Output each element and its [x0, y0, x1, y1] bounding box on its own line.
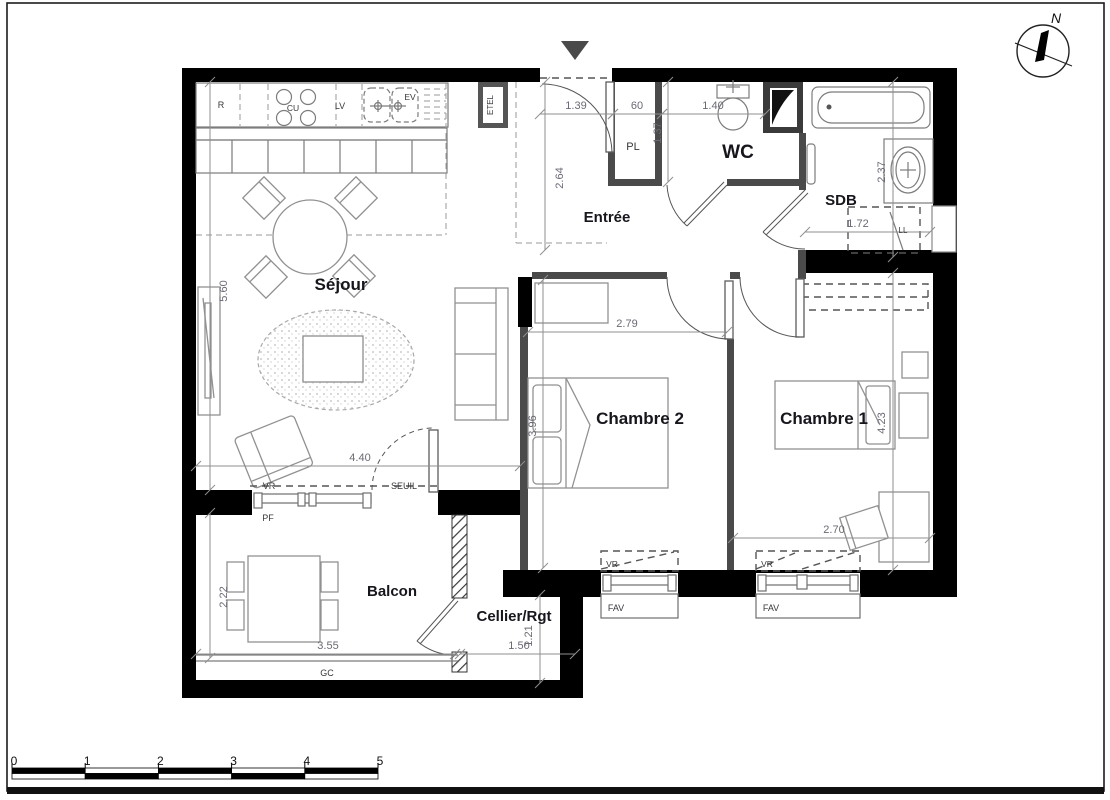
washing-machine-dashed	[848, 207, 920, 253]
dimension-2.64: 2.64	[540, 77, 566, 255]
annotation-cooktop: CU	[287, 103, 299, 113]
dimension-label-10: 3.96	[527, 415, 539, 436]
tv-unit	[198, 287, 220, 415]
annotation-fav-ch1: FAV	[763, 603, 779, 613]
annotation-sink: EV	[404, 92, 416, 102]
shelf-dashes	[424, 89, 446, 119]
room-label-sejour: Séjour	[315, 275, 368, 294]
room-label-wc: WC	[722, 142, 754, 163]
annotation-vr-ch2: VR	[606, 559, 618, 569]
coffee-table	[303, 336, 363, 382]
annotation-seuil: SEUIL	[391, 481, 417, 491]
dimension-2.79: 2.79	[523, 318, 732, 337]
scale-segment-bottom	[305, 774, 378, 780]
dimension-1.72: 1.72	[800, 218, 935, 237]
dimension-label-9: 2.79	[616, 318, 637, 330]
double-bed	[528, 378, 668, 488]
scale-segment-bottom	[12, 774, 85, 780]
floor-plan-page: N 1.39601.401.372.642.371.725.604.402.79…	[0, 0, 1110, 800]
wc-door	[667, 182, 727, 226]
compass-north-label: N	[1051, 10, 1062, 26]
dimension-label-6: 1.72	[847, 218, 868, 230]
north-compass: N	[1015, 10, 1072, 77]
dimension-label-11: 4.23	[876, 412, 888, 433]
annotation-dishwasher: LV	[335, 101, 345, 111]
dimension-label-1: 60	[631, 100, 643, 112]
cellier-door	[417, 598, 458, 655]
dimension-label-16: 1.21	[523, 625, 535, 646]
dimension-label-2: 1.40	[702, 100, 723, 112]
nightstand	[902, 352, 928, 378]
scale-label-1: 1	[84, 754, 91, 768]
room-label-cellier: Cellier/Rgt	[476, 608, 551, 625]
radiator	[807, 144, 815, 184]
annotation-vr-ch1: VR	[761, 559, 773, 569]
dimension-label-4: 2.64	[554, 167, 566, 188]
room-label-chambre2: Chambre 2	[596, 409, 684, 428]
annotation-refrigerator: R	[218, 100, 225, 110]
wardrobe-dashed	[802, 284, 928, 310]
scale-segment-top	[85, 768, 158, 774]
scale-label-2: 2	[157, 754, 164, 768]
dimension-label-0: 1.39	[565, 100, 586, 112]
scale-bar: 012345	[11, 754, 384, 779]
annotation-washer: LL	[899, 226, 908, 235]
annotation-vr-sejour: VR	[263, 481, 276, 491]
scale-segment-top	[232, 768, 305, 774]
dimension-label-7: 5.60	[218, 280, 230, 301]
scale-segment-bottom	[85, 774, 158, 780]
scale-label-3: 3	[230, 754, 237, 768]
dimension-1.40: 1.40	[657, 100, 770, 119]
room-label-sdb: SDB	[825, 192, 857, 209]
entrance-door	[540, 78, 614, 152]
dimension-label-3: 1.37	[652, 122, 664, 143]
chambre2-door	[667, 277, 733, 339]
dimension-1.21: 1.21	[523, 590, 545, 688]
room-label-balcon: Balcon	[367, 583, 417, 600]
scale-segment-bottom	[232, 774, 305, 780]
nightstand-2	[899, 393, 928, 438]
room-label-chambre1: Chambre 1	[780, 409, 868, 428]
entrance-arrow	[561, 41, 589, 60]
annotation-fav-ch2: FAV	[608, 603, 624, 613]
sofa	[455, 288, 508, 420]
wardrobe-chambre2	[535, 283, 608, 323]
desk	[879, 492, 929, 562]
scale-label-0: 0	[11, 754, 18, 768]
dimension-label-8: 4.40	[349, 452, 370, 464]
balcony-railing	[196, 655, 458, 661]
sdb-door	[763, 190, 808, 249]
dimension-2.22: 2.22	[205, 508, 230, 663]
scale-segment-top	[158, 768, 231, 774]
bathtub	[812, 87, 930, 128]
annotation-gc: GC	[320, 668, 334, 678]
balcony-table	[227, 556, 338, 642]
scale-segment-top	[12, 768, 85, 774]
dimension-label-14: 3.55	[317, 640, 338, 652]
floor-plan-drawing: N 1.39601.401.372.642.371.725.604.402.79…	[0, 0, 1110, 800]
area-rug	[258, 310, 414, 410]
interior-walls	[520, 82, 806, 570]
scale-label-4: 4	[303, 754, 310, 768]
room-label-entree: Entrée	[584, 209, 631, 226]
dimension-label-5: 2.37	[876, 161, 888, 182]
dimension-label-12: 2.70	[823, 524, 844, 536]
dimension-label-13: 2.22	[218, 586, 230, 607]
armchair	[234, 415, 314, 489]
annotation-etel: ETEL	[486, 94, 495, 115]
chambre1-door	[740, 277, 804, 337]
scale-segment-bottom	[158, 774, 231, 780]
window-niche-sdb	[932, 206, 956, 252]
washbasin	[884, 139, 933, 203]
duct-shaft	[763, 82, 803, 133]
hatched-wall	[452, 515, 467, 672]
scale-segment-top	[305, 768, 378, 774]
scale-label-5: 5	[377, 754, 384, 768]
annotation-pf: PF	[262, 513, 274, 523]
annotation-closet: PL	[626, 141, 639, 153]
